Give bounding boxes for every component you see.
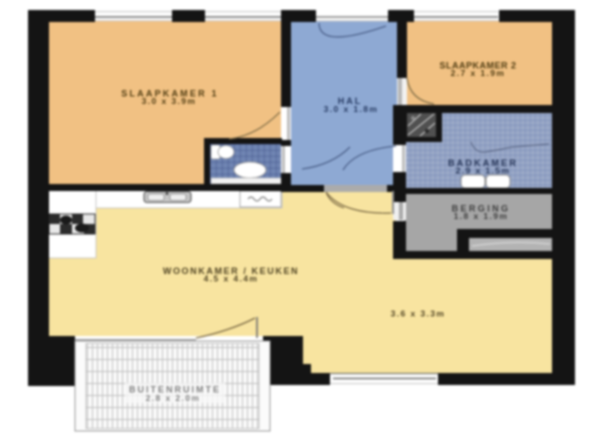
svg-text:3.0 x 1.8m: 3.0 x 1.8m (324, 104, 379, 114)
svg-text:2.7 x 1.9m: 2.7 x 1.9m (451, 68, 506, 78)
svg-text:2.8 x 2.0m: 2.8 x 2.0m (146, 393, 201, 403)
svg-text:3.0 x 3.9m: 3.0 x 3.9m (142, 96, 197, 106)
svg-text:4.5 x 4.4m: 4.5 x 4.4m (204, 274, 259, 284)
svg-text:2.9 x 1.5m: 2.9 x 1.5m (456, 166, 511, 176)
svg-text:1.8 x 1.9m: 1.8 x 1.9m (454, 211, 509, 221)
svg-text:3.6 x 3.3m: 3.6 x 3.3m (391, 309, 446, 319)
